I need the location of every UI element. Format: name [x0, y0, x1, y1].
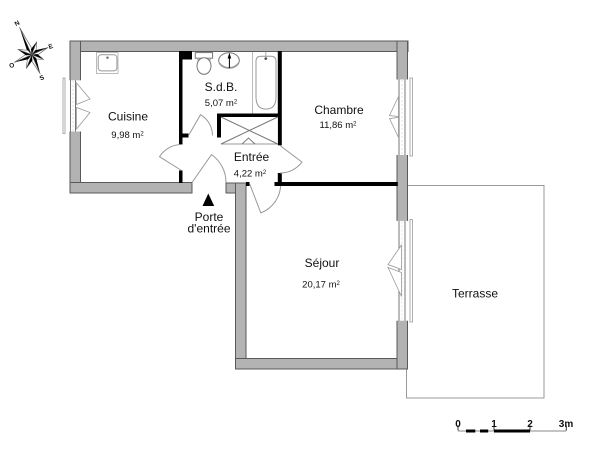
svg-text:5,07 m2: 5,07 m2	[205, 98, 238, 109]
svg-text:4,22 m2: 4,22 m2	[234, 169, 267, 180]
svg-text:3m: 3m	[559, 419, 574, 430]
svg-text:20,17 m2: 20,17 m2	[302, 280, 340, 291]
svg-text:d'entrée: d'entrée	[188, 222, 231, 236]
svg-text:S.d.B.: S.d.B.	[205, 80, 238, 94]
svg-text:Cuisine: Cuisine	[108, 110, 148, 124]
svg-text:0: 0	[455, 419, 461, 430]
svg-text:Entrée: Entrée	[234, 150, 270, 164]
svg-text:Terrasse: Terrasse	[452, 287, 498, 301]
svg-text:Séjour: Séjour	[305, 256, 340, 270]
svg-text:2: 2	[527, 419, 533, 430]
svg-text:11,86 m2: 11,86 m2	[320, 120, 358, 131]
svg-text:9,98 m2: 9,98 m2	[111, 130, 144, 141]
svg-text:1: 1	[491, 419, 497, 430]
svg-text:Chambre: Chambre	[314, 103, 364, 117]
